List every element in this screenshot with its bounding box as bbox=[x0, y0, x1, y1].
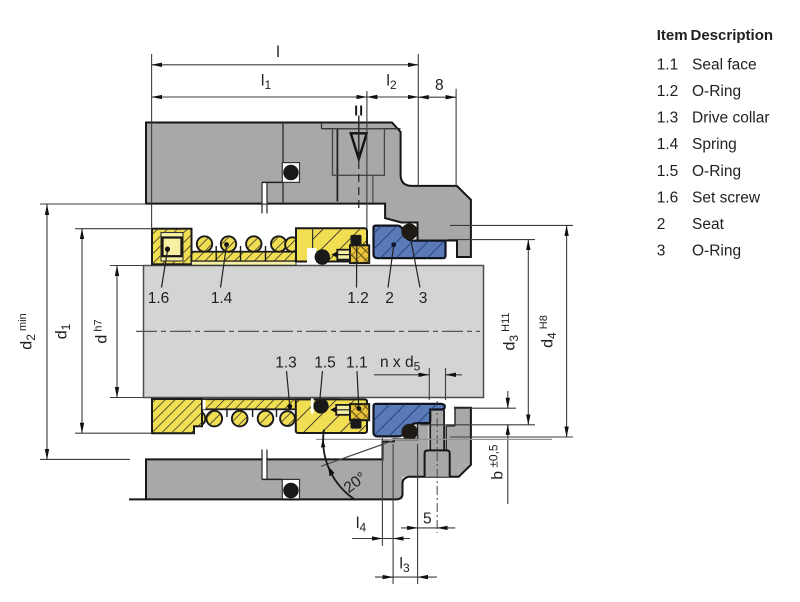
svg-text:8: 8 bbox=[435, 77, 444, 94]
svg-text:Spring: Spring bbox=[692, 136, 737, 153]
svg-text:1.2: 1.2 bbox=[657, 83, 679, 100]
svg-text:1.2: 1.2 bbox=[347, 290, 369, 307]
svg-text:Set screw: Set screw bbox=[692, 189, 761, 206]
svg-text:3: 3 bbox=[419, 290, 428, 307]
svg-text:2: 2 bbox=[385, 290, 394, 307]
svg-text:O-Ring: O-Ring bbox=[692, 243, 741, 260]
svg-text:1.5: 1.5 bbox=[657, 163, 679, 180]
svg-text:Item: Item bbox=[657, 27, 688, 44]
svg-text:O-Ring: O-Ring bbox=[692, 83, 741, 100]
svg-text:O-Ring: O-Ring bbox=[692, 163, 741, 180]
svg-text:1.3: 1.3 bbox=[275, 355, 297, 372]
svg-text:2: 2 bbox=[657, 216, 666, 233]
svg-text:1.3: 1.3 bbox=[657, 110, 679, 127]
svg-text:1.4: 1.4 bbox=[657, 136, 679, 153]
svg-text:1.4: 1.4 bbox=[211, 290, 233, 307]
svg-text:3: 3 bbox=[657, 243, 666, 260]
svg-text:Seal face: Seal face bbox=[692, 56, 757, 73]
svg-text:1.1: 1.1 bbox=[346, 355, 368, 372]
svg-text:1.1: 1.1 bbox=[657, 56, 679, 73]
svg-text:1.6: 1.6 bbox=[148, 290, 170, 307]
svg-text:Seat: Seat bbox=[692, 216, 725, 233]
svg-text:1.6: 1.6 bbox=[657, 189, 679, 206]
svg-text:5: 5 bbox=[423, 511, 432, 528]
svg-text:Drive collar: Drive collar bbox=[692, 110, 770, 127]
svg-text:Description: Description bbox=[691, 27, 774, 44]
svg-text:1.5: 1.5 bbox=[314, 355, 336, 372]
svg-text:l: l bbox=[276, 44, 280, 61]
